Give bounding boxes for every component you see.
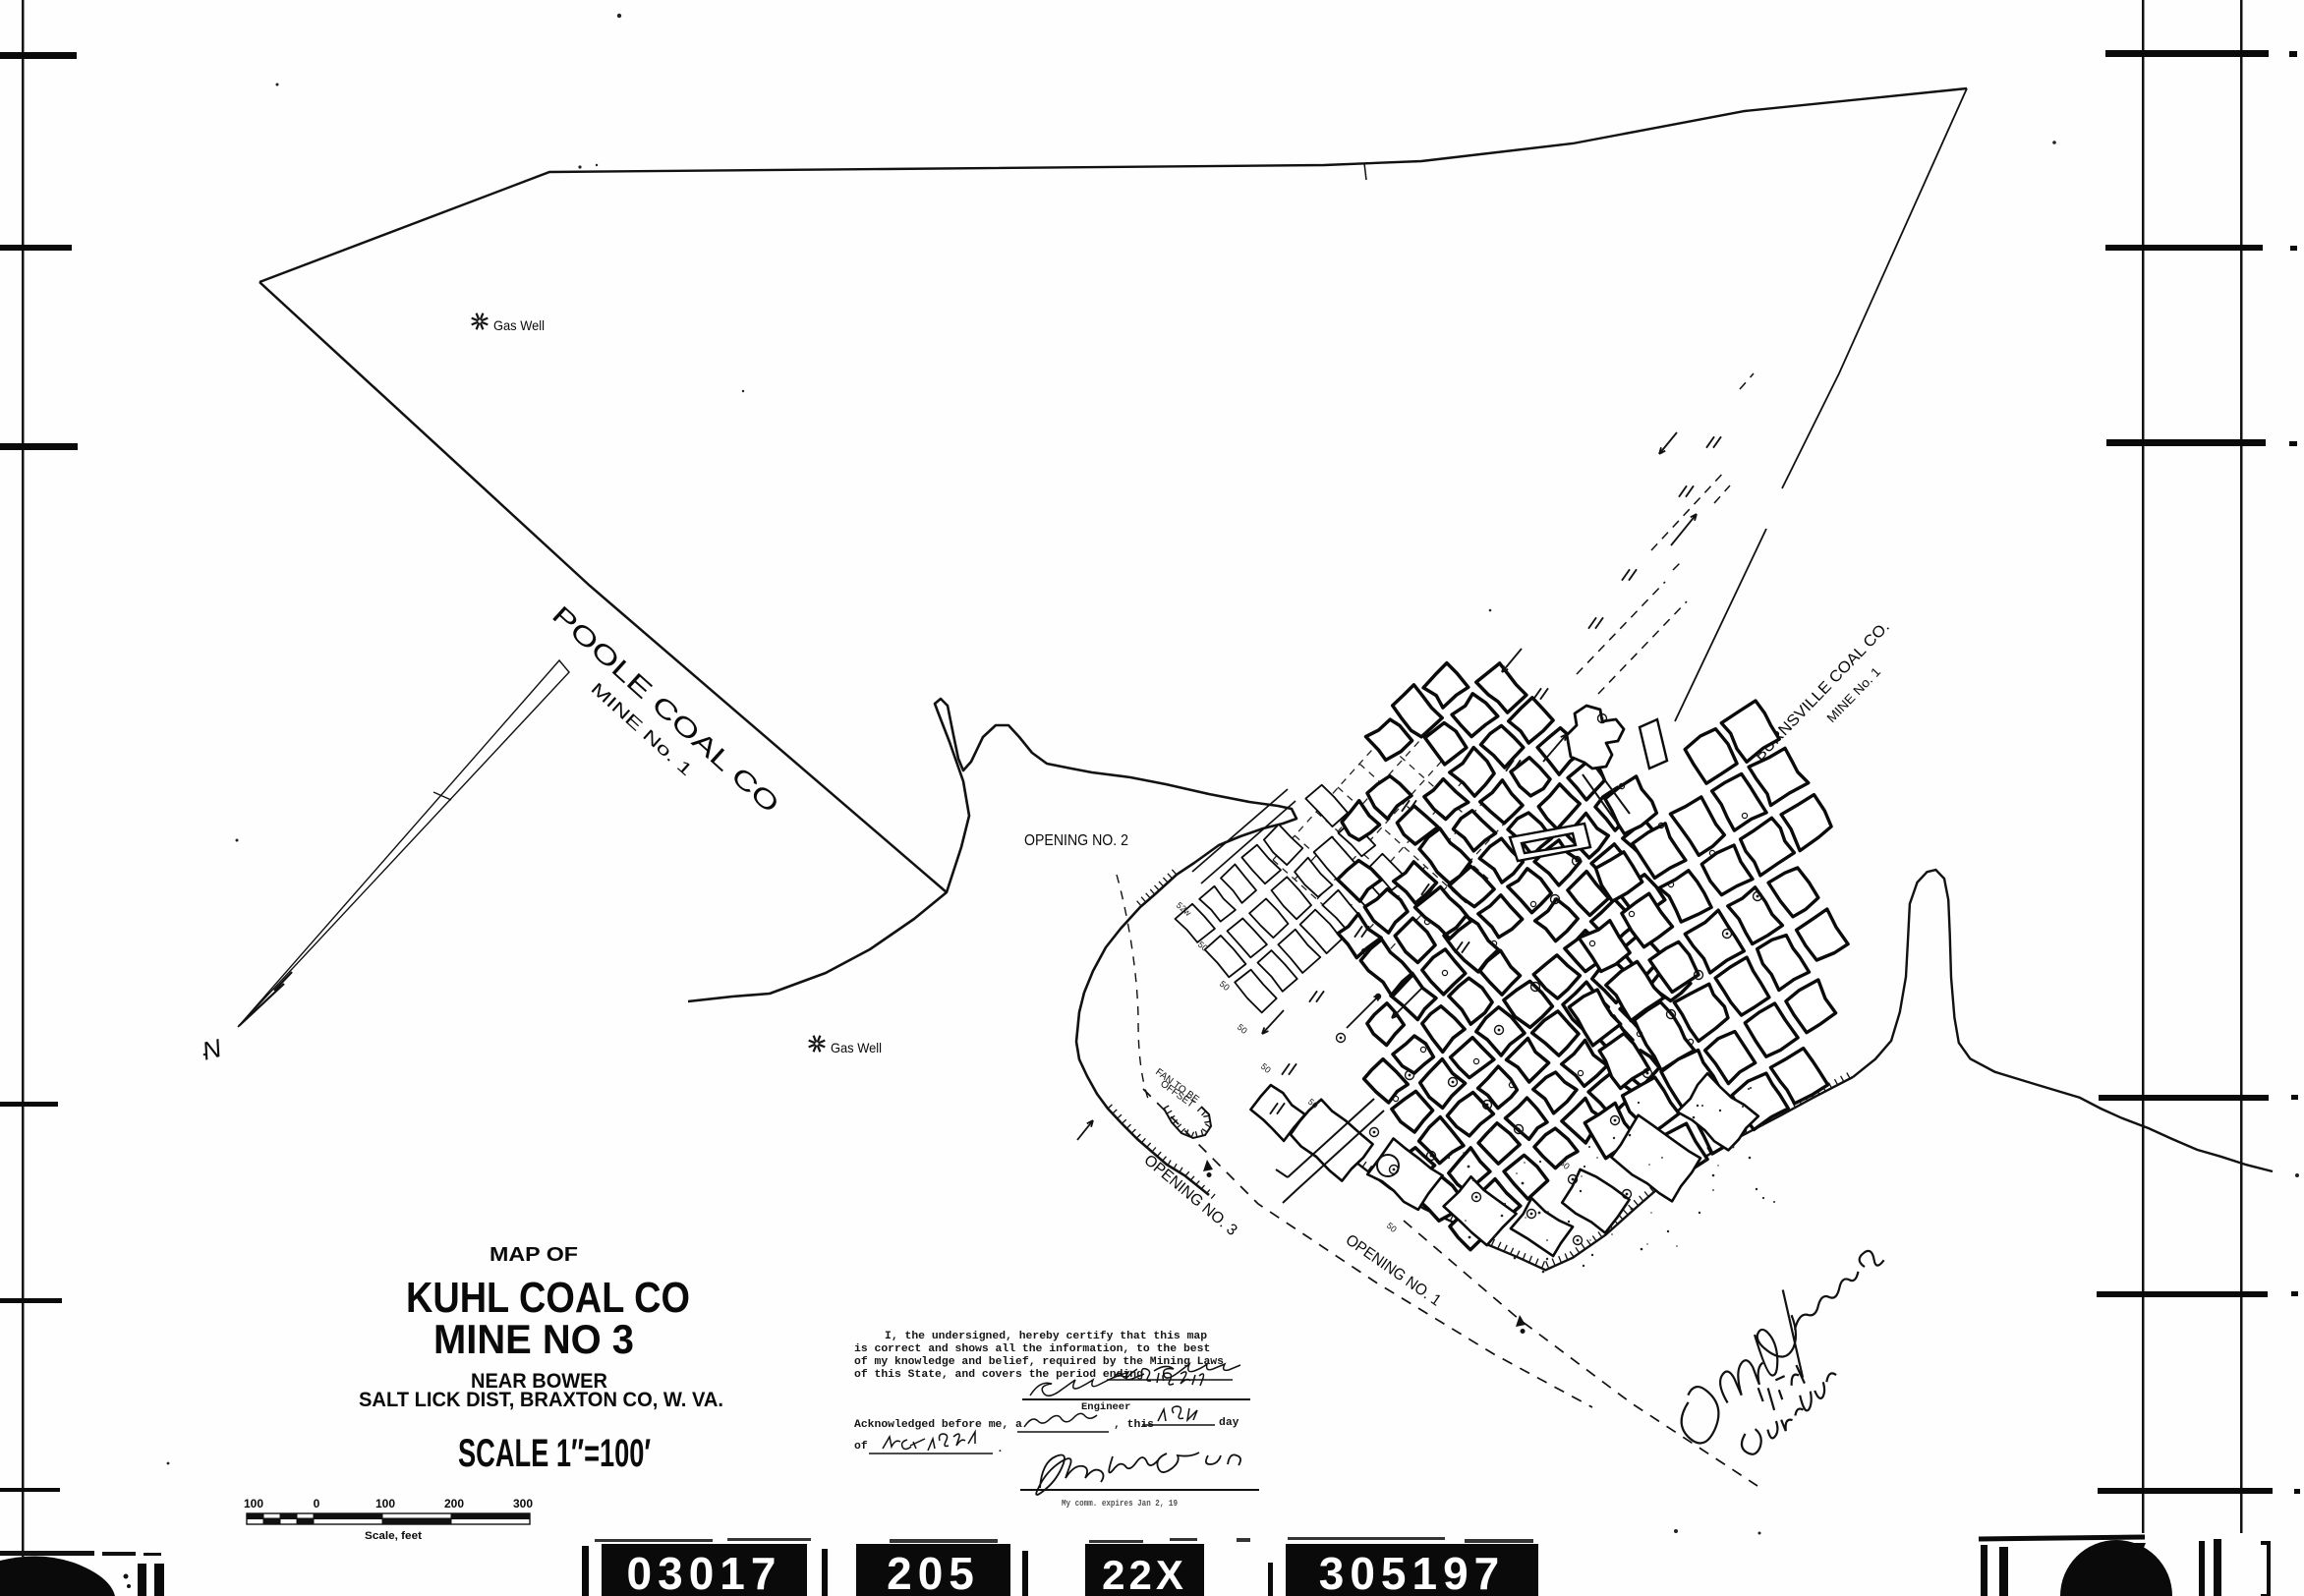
svg-text:SALT LICK DIST, BRAXTON CO, W: SALT LICK DIST, BRAXTON CO, W. VA. (359, 1389, 723, 1411)
svg-text:I, the undersigned, hereby cer: I, the undersigned, hereby certify that … (885, 1331, 1207, 1342)
svg-text:Gas Well: Gas Well (831, 1040, 882, 1055)
svg-text:OPENING NO. 2: OPENING NO. 2 (1024, 832, 1128, 849)
svg-text:KUHL COAL CO: KUHL COAL CO (406, 1274, 690, 1322)
svg-text:MAP OF: MAP OF (490, 1244, 578, 1266)
svg-text:0: 0 (314, 1497, 320, 1510)
svg-text:22X: 22X (1102, 1552, 1187, 1596)
svg-text:SCALE 1″=100′: SCALE 1″=100′ (458, 1432, 651, 1475)
svg-text:100: 100 (244, 1497, 263, 1510)
svg-text:of this State, and covers the: of this State, and covers the period end… (854, 1369, 1143, 1381)
svg-text:305197: 305197 (1319, 1548, 1506, 1596)
svg-text:Acknowledged before me, a: Acknowledged before me, a (854, 1419, 1022, 1431)
svg-text:of: of (854, 1441, 868, 1453)
svg-text:MINE NO 3: MINE NO 3 (433, 1316, 634, 1362)
svg-text:200: 200 (444, 1497, 464, 1510)
svg-text:day: day (1219, 1417, 1239, 1429)
svg-text:205: 205 (887, 1548, 980, 1596)
svg-text:Gas Well: Gas Well (493, 317, 545, 333)
svg-text:Scale, feet: Scale, feet (365, 1530, 422, 1542)
svg-text:.: . (997, 1444, 1004, 1455)
svg-text:03017: 03017 (627, 1548, 782, 1596)
svg-text:Engineer: Engineer (1081, 1401, 1130, 1413)
svg-text:My comm. expires Jan 2, 19: My comm. expires Jan 2, 19 (1062, 1498, 1178, 1509)
svg-text:is correct and shows all the i: is correct and shows all the information… (854, 1343, 1210, 1355)
svg-text:100: 100 (375, 1497, 395, 1510)
svg-text:300: 300 (513, 1497, 533, 1510)
